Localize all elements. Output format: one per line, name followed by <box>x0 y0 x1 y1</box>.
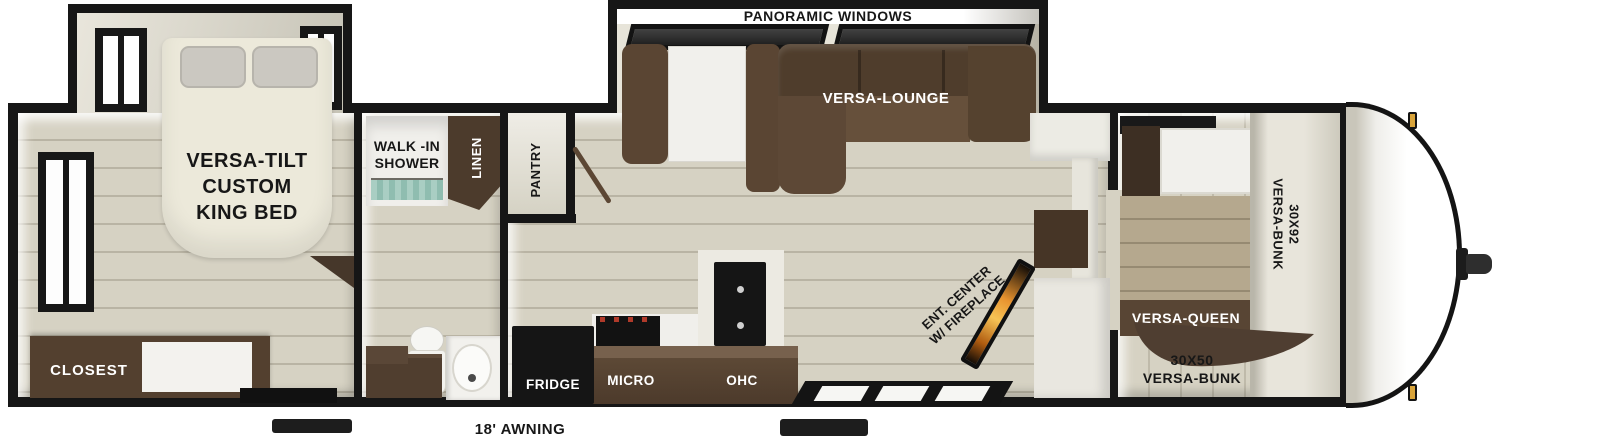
bed-pillow-left <box>180 46 246 88</box>
pantry-wall-right <box>566 113 575 223</box>
closet-dresser-top <box>142 342 252 392</box>
marker-light-top <box>1408 112 1417 129</box>
lounge-chair-mid <box>746 44 780 192</box>
micro-label: MICRO <box>599 373 663 389</box>
front-cap <box>1346 102 1462 408</box>
lounge-table <box>668 46 746 162</box>
entry-step-slat <box>935 386 990 401</box>
bunk-bed-upper <box>1160 128 1254 194</box>
exterior-rear-step <box>272 419 352 433</box>
hitch-coupler <box>1466 254 1492 274</box>
cabinet-knob-bottom <box>737 322 744 329</box>
exterior-entry-step <box>780 419 868 436</box>
cabinet-knob-top <box>737 286 744 293</box>
closet-label: CLOSEST <box>36 362 142 380</box>
overhead-cabinet-brown <box>1034 210 1088 268</box>
bunk-30x92-label: 30X92 VERSA-BUNK <box>1269 169 1302 279</box>
bunk-30x50-label: 30X50 VERSA-BUNK <box>1126 352 1258 387</box>
pantry-wall-bottom <box>500 214 576 223</box>
sofa-chaise <box>778 96 846 194</box>
entry-step-slat <box>874 386 929 401</box>
pantry-label: PANTRY <box>528 130 544 210</box>
versa-lounge-label: VERSA-LOUNGE <box>786 90 986 108</box>
bath-sink <box>452 344 492 392</box>
living-partition-h <box>1030 113 1110 161</box>
walk-in-shower-label: WALK -IN SHOWER <box>366 138 448 172</box>
linen-label: LINEN <box>469 123 483 193</box>
bedroom-window <box>38 152 94 312</box>
cooktop-burner-knobs <box>600 317 656 322</box>
king-bed-label: VERSA-TILT CUSTOM KING BED <box>162 148 332 226</box>
fireplace-wall <box>1034 278 1110 398</box>
sofa-back-seam-2 <box>942 50 945 92</box>
bunk-platform <box>1120 196 1252 302</box>
shower-floor-tile <box>371 178 443 200</box>
awning-label: 18' AWNING <box>430 421 610 439</box>
floorplan-canvas: VERSA-TILT CUSTOM KING BED CLOSEST WALK … <box>0 0 1600 445</box>
entry-step-slat <box>814 386 869 401</box>
bed-pillow-right <box>252 46 318 88</box>
fridge-label: FRIDGE <box>512 377 594 393</box>
ohc-label: OHC <box>712 373 772 389</box>
bunk-cabinet <box>1122 126 1160 196</box>
bedroom-tv <box>240 388 337 403</box>
panoramic-windows-label: PANORAMIC WINDOWS <box>617 8 1039 25</box>
lounge-chair-left <box>622 44 668 164</box>
marker-light-bottom <box>1408 384 1417 401</box>
kitchen-upper-cabinet <box>714 262 766 346</box>
sofa-back-seam-1 <box>858 50 861 92</box>
bathroom-cabinet-step <box>366 346 408 364</box>
entry-steps <box>791 381 1013 406</box>
bedroom-slide-window-left <box>95 28 147 112</box>
bath-faucet <box>468 374 476 382</box>
